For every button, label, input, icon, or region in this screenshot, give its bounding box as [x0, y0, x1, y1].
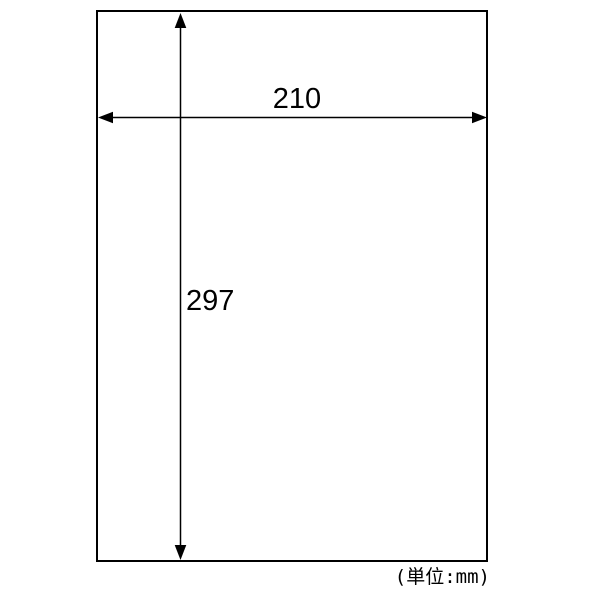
height-dimension-label: 297 — [186, 287, 234, 316]
dimension-diagram: 210 297 (単位:mm) — [0, 0, 600, 600]
unit-note-label: (単位:mm) — [395, 566, 490, 589]
width-dimension-label: 210 — [237, 85, 357, 114]
